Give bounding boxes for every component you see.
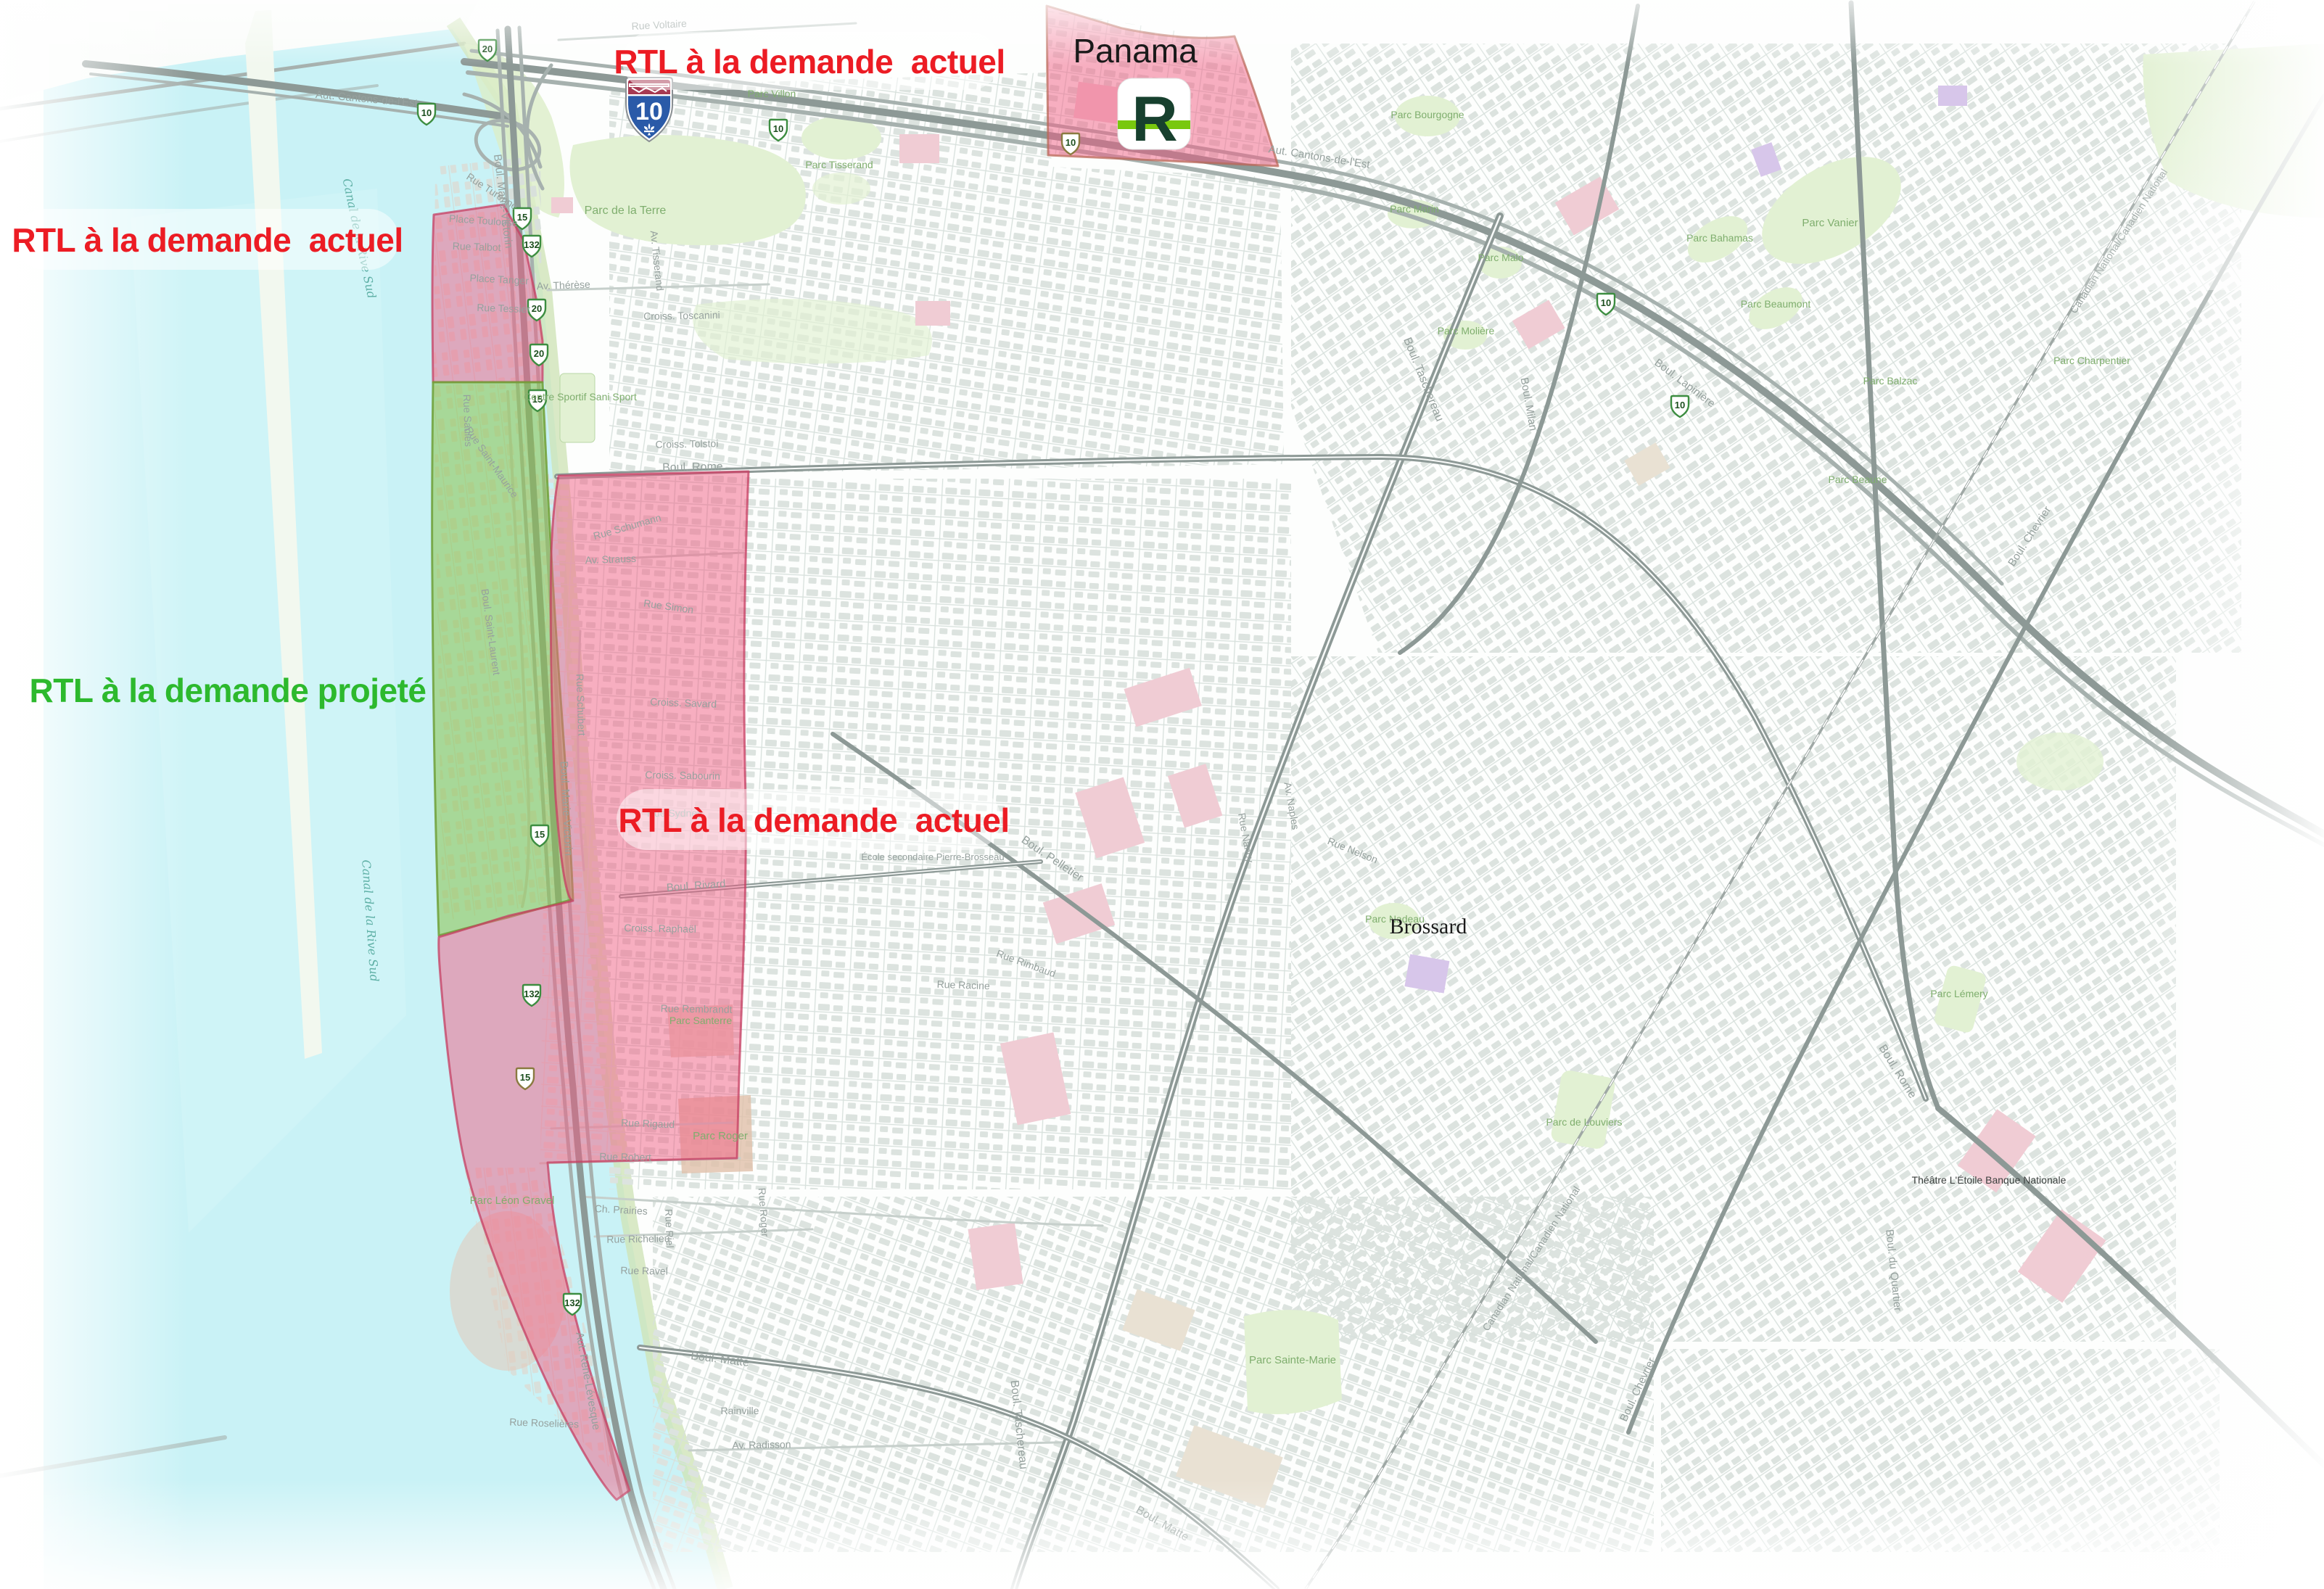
park-label: Parc Roger (693, 1130, 748, 1142)
route-shield-132: 132 (524, 989, 540, 999)
route-shield-10: 10 (1601, 297, 1611, 308)
city-label-brossard: Brossard (1390, 915, 1467, 938)
park-label: Parc Lémery (1930, 988, 1987, 999)
street-label: Av. Radisson (732, 1438, 791, 1450)
park-label: Parc de la Terre (585, 205, 667, 217)
park-label: Parc Sainte-Marie (1249, 1354, 1336, 1366)
panama-station-label: Panama (1073, 32, 1198, 70)
park-label: Parc Balzac (1863, 375, 1918, 387)
poi-label-ecole: École secondaire Pierre-Brosseau (861, 851, 1004, 862)
street-label: Rue Rigaud (621, 1117, 675, 1131)
park-label: Parc Bahamas (1686, 232, 1753, 244)
route-shield-15: 15 (520, 1072, 530, 1083)
street-label: Rue Riel (663, 1209, 676, 1248)
park-label: Parc Santerre (669, 1015, 733, 1026)
sani-sport-building (560, 373, 595, 442)
street-label: Rainville (721, 1405, 759, 1416)
park-label: Parc Marin (1390, 203, 1439, 215)
street-label: Rue Schubert (574, 674, 588, 736)
street-label: Rue Roselières (509, 1416, 579, 1429)
park-label: Parc Léon Gravel (470, 1194, 555, 1207)
park-label: Parc Bourgogne (1390, 109, 1464, 120)
park-label: Parc Vanier (1802, 217, 1858, 229)
park-label: Parc Beaumont (1741, 298, 1811, 310)
route-shield-10: 10 (1675, 400, 1685, 410)
rem-station-logo: R (1118, 78, 1190, 154)
route-shield-15: 15 (535, 829, 545, 840)
autoroute-10-number: 10 (635, 98, 663, 125)
route-shield-10: 10 (421, 107, 432, 118)
street-label: Croiss. Toscanini (643, 309, 720, 322)
street-label: Boul. Rome (662, 461, 723, 474)
route-shield-132: 132 (524, 239, 540, 250)
route-shield-10: 10 (1066, 137, 1076, 148)
poi-label-sani-sport: Centre Sportif Sani Sport (524, 391, 637, 403)
park-label: Parc Malo (1478, 252, 1523, 263)
street-label: Av. Thérèse (537, 278, 591, 292)
route-shield-20: 20 (534, 348, 544, 359)
route-shield-15: 15 (517, 212, 527, 223)
park-label: Parc Beaune (1829, 474, 1887, 485)
park-label: Parc Molière (1438, 325, 1495, 337)
street-label: Rue Talbot (453, 240, 501, 253)
rtl-demand-zones-map: 20 10 15 132 20 20 15 10 15 132 15 132 1… (0, 0, 2324, 1589)
street-label: Croiss. Raphaël (624, 922, 696, 935)
park-label: Parc de Louviers (1546, 1116, 1622, 1128)
street-label: Rue Robert (599, 1150, 651, 1163)
street-label: Croiss. Savard (650, 696, 717, 709)
street-label: Av. Strauss (585, 553, 636, 566)
street-label: Rue Racine (936, 978, 990, 992)
rtl-projete-label: RTL à la demande projeté (30, 672, 427, 709)
route-shield-132: 132 (564, 1297, 580, 1308)
rem-logo-letter: R (1132, 83, 1178, 154)
park-label: Parc Charpentier (2053, 355, 2130, 366)
street-label: Rue Richelieu (606, 1232, 669, 1245)
street-label: Croiss. Tolstoi (655, 437, 718, 450)
street-label: Croiss. Sabourin (645, 769, 720, 782)
street-label: Rue Tessier (477, 302, 531, 315)
rtl-actuel-label-top: RTL à la demande actuel (614, 43, 1005, 81)
street-label: Rue Ravel (620, 1264, 668, 1276)
route-shield-20: 20 (532, 303, 542, 314)
rtl-actuel-label-left: RTL à la demande actuel (12, 221, 403, 259)
route-shield-10: 10 (773, 123, 783, 134)
street-label: Rue Rembrandt (661, 1002, 733, 1015)
park-label: Parc Tisserand (805, 159, 873, 170)
rtl-actuel-label-center: RTL à la demande actuel (618, 801, 1009, 839)
